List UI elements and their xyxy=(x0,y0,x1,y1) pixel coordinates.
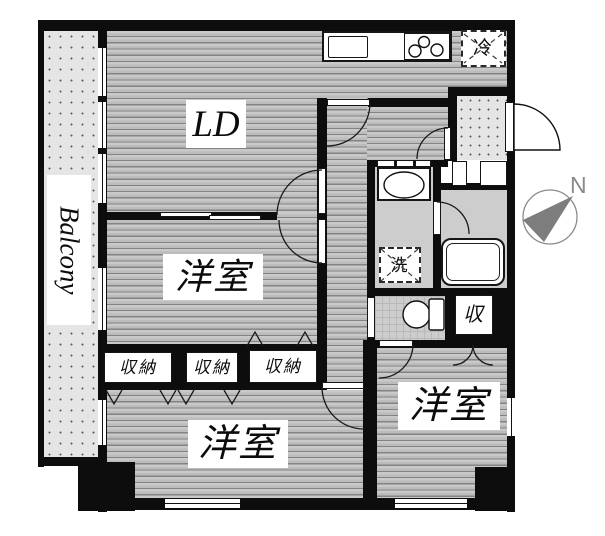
corridor-door-leaf xyxy=(444,127,451,160)
fridge-nook-bottom-wall xyxy=(452,87,507,96)
bottom-right-room-door-leaf xyxy=(379,340,413,347)
ld-sliding-door-panel-2 xyxy=(209,215,261,220)
entrance-genkan-area xyxy=(457,96,507,160)
ld-sliding-door-panel-1 xyxy=(160,212,212,217)
balcony-label: Balcony xyxy=(47,175,91,325)
refrigerator-box: 冷 xyxy=(461,30,506,67)
floor-plan: 冷 洗 収納 収納 収納 収 LD 洋室 洋室 洋室 Balcony N xyxy=(0,0,605,536)
corridor-floor xyxy=(367,107,448,160)
entrance-door-swing xyxy=(514,104,560,150)
vanity-shelf-1 xyxy=(377,160,395,167)
kitchen-sink xyxy=(328,36,368,58)
bottom-right-room-label: 洋室 xyxy=(398,382,500,430)
closet-2: 収納 xyxy=(186,352,238,383)
balcony-window-bottom-room xyxy=(98,400,106,445)
toilet-floor xyxy=(375,296,445,344)
bathtub xyxy=(441,238,505,286)
washer-box: 洗 xyxy=(379,247,421,283)
bottom-left-room-label: 洋室 xyxy=(188,420,288,468)
bottom-rooms-divider-wall xyxy=(363,340,377,498)
vanity-counter xyxy=(377,167,431,201)
toilet-door-leaf xyxy=(367,297,375,338)
outer-wall-right xyxy=(507,20,515,512)
toilet-top-wall xyxy=(367,288,445,296)
stove-plate xyxy=(404,33,450,60)
entrance-door-leaf xyxy=(505,102,514,152)
hallway-floor xyxy=(327,98,367,383)
bottom-left-room-door-leaf xyxy=(322,382,364,389)
middle-room-door-leaf xyxy=(318,219,326,264)
vanity-shelf-2 xyxy=(396,160,414,167)
bathtub-inner-rim xyxy=(446,243,500,281)
balcony-wall-left xyxy=(38,20,44,467)
closet-small: 収 xyxy=(455,295,493,335)
shoe-cabinet xyxy=(480,161,507,186)
bath-door-gap xyxy=(433,201,441,235)
window-mullion xyxy=(98,148,106,154)
pillar-bottom-right xyxy=(475,467,515,511)
bottom-window-right xyxy=(395,499,467,508)
middle-room-label: 洋室 xyxy=(163,254,263,300)
north-compass xyxy=(523,190,577,244)
right-wall-window xyxy=(507,398,515,436)
balcony-window-middle-room xyxy=(98,268,106,330)
genkan-step xyxy=(452,161,467,186)
ldk-door-leaf xyxy=(327,99,370,106)
closet-3: 収納 xyxy=(249,350,317,383)
compass-north-label: N xyxy=(570,172,587,199)
vanity-shelf-3 xyxy=(415,160,431,167)
kitchen-bottom-wall xyxy=(368,98,452,107)
closet-1: 収納 xyxy=(104,352,172,383)
bottom-window-left xyxy=(165,499,240,508)
outer-wall-top xyxy=(38,20,515,31)
pillar-bottom-left xyxy=(78,462,135,511)
ld-hall-door-leaf xyxy=(318,168,326,214)
ld-room-label: LD xyxy=(186,100,246,148)
window-mullion xyxy=(98,96,106,102)
balcony-window-ld xyxy=(98,48,106,203)
